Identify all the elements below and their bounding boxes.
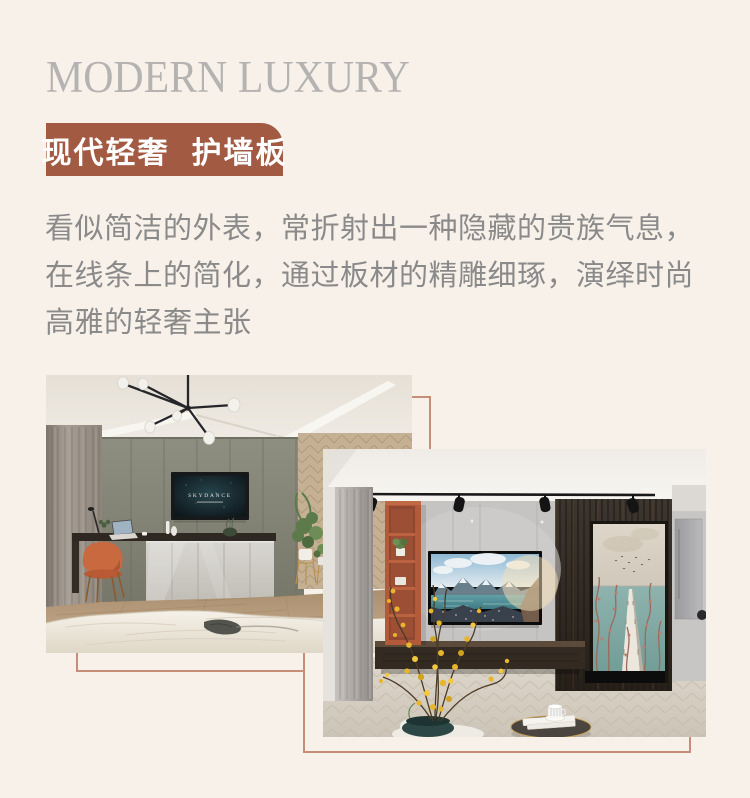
orange-shelf xyxy=(385,501,426,645)
tv-screen: SKYDANCE xyxy=(171,472,249,523)
pier-artwork xyxy=(590,521,668,683)
cup xyxy=(142,532,147,536)
accent-frame-line xyxy=(76,670,305,672)
badge-label-left: 现代轻奢 xyxy=(42,128,170,172)
intro-line: 在线条上的简化，通过板材的精雕细琢，演绎时尚 xyxy=(45,253,715,300)
section-badge: 现代轻奢 护墙板 xyxy=(46,123,283,176)
svg-text:SKYDANCE: SKYDANCE xyxy=(188,493,232,499)
shelf-decor xyxy=(395,577,406,585)
intro-line: 高雅的轻奢主张 xyxy=(45,300,715,347)
accent-frame-line xyxy=(429,396,431,449)
accent-frame-line xyxy=(689,736,691,753)
photo-livingroom-tv-wall xyxy=(323,449,706,737)
badge-label-right: 护墙板 xyxy=(192,128,288,172)
shelf-plant-pot xyxy=(396,548,405,556)
hallway-right xyxy=(672,485,706,681)
decor-plant-bowl xyxy=(223,528,237,537)
accent-frame-line xyxy=(303,751,691,753)
accent-frame-line xyxy=(303,653,305,753)
intro-line: 看似简洁的外表，常折射出一种隐藏的贵族气息， xyxy=(45,206,715,253)
page-title: MODERN LUXURY xyxy=(46,52,410,102)
black-planter xyxy=(585,671,665,683)
laptop xyxy=(112,520,133,535)
intro-paragraph: 看似简洁的外表，常折射出一种隐藏的贵族气息， 在线条上的简化，通过板材的精雕细琢… xyxy=(45,206,715,347)
decor-bottle xyxy=(166,521,170,534)
promo-page: MODERN LUXURY 现代轻奢 护墙板 看似简洁的外表，常折射出一种隐藏的… xyxy=(0,0,750,798)
curtains-left xyxy=(323,487,373,701)
